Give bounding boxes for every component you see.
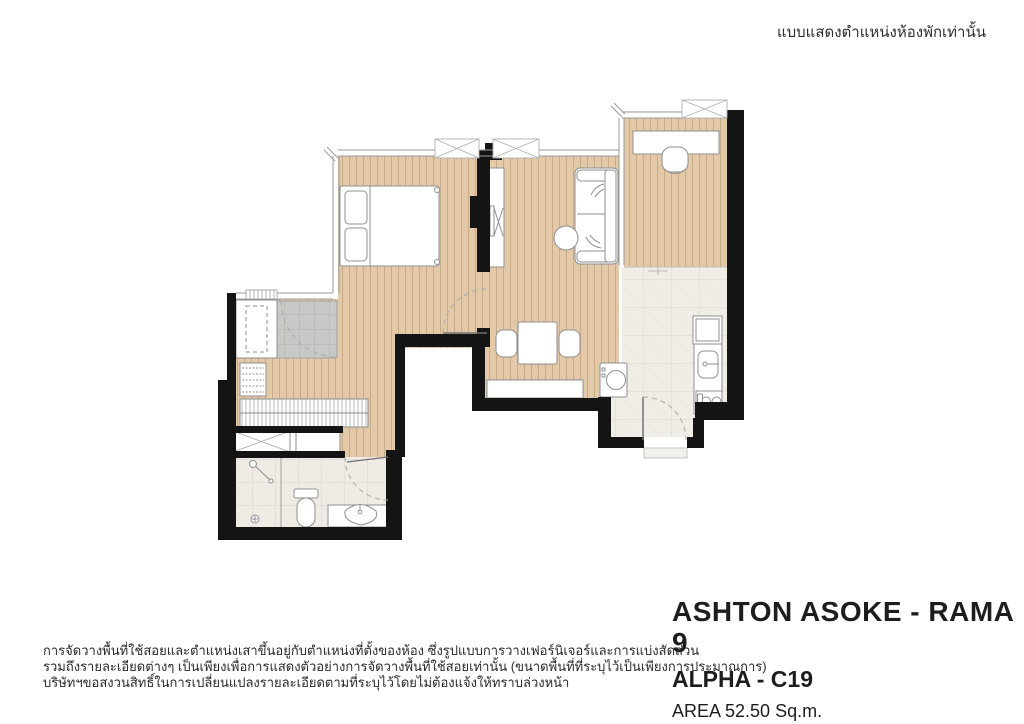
dining-counter-icon: [487, 380, 583, 398]
sink-icon: [698, 351, 719, 378]
disclaimer-line-2: รวมถึงรายละเอียดต่างๆ เป็นเพียงเพื่อการแ…: [43, 659, 767, 675]
bathroom-top-wall: [227, 451, 345, 458]
fridge-icon: [693, 316, 722, 344]
vanity-basin-icon: [328, 505, 389, 528]
ac-unit-icon-3: [682, 100, 727, 118]
bedroom-partition-block: [470, 196, 490, 228]
bedroom-partition-stub: [477, 328, 490, 347]
louver-vent: [246, 290, 277, 299]
ac-unit-icon-1: [435, 139, 479, 158]
corridor-east-wall: [395, 334, 405, 457]
ac-ledge-gray-tile: [277, 301, 337, 358]
entry-threshold: [644, 448, 687, 458]
ac-unit-icon-2: [493, 139, 539, 158]
office-partition: [619, 118, 624, 265]
bathroom-east-wall: [386, 450, 402, 540]
corner-chamfer-bedroom: [324, 147, 338, 161]
unit-area: AREA 52.50 Sq.m.: [672, 701, 1024, 722]
corner-chamfer-office: [611, 103, 625, 117]
bathroom-bottom-wall: [220, 527, 402, 540]
notch-top-wall: [400, 334, 485, 347]
left-wall-lower: [218, 380, 236, 540]
side-table-icon: [554, 226, 578, 250]
disclaimer-line-3: บริษัทฯขอสงวนสิทธิ์ในการเปลี่ยนแปลงรายละ…: [43, 675, 767, 691]
floor-drain-icon: [251, 515, 259, 523]
entry-corner-wall: [695, 402, 744, 420]
shelf-rack-icon: [240, 363, 266, 396]
wardrobe-rail-icon: [240, 399, 368, 427]
disclaimer-line-1: การจัดวางพื้นที่ใช้สอยและตำแหน่งเสาขึ้นอ…: [43, 643, 767, 659]
left-wall-upper: [227, 293, 236, 385]
closet-cabinet-icon: [236, 300, 277, 358]
floorplan-page: แบบแสดงตำแหน่งห้องพักเท่านั้น: [0, 0, 1024, 724]
entry-bottom-wall-east: [687, 437, 700, 448]
right-wall: [727, 110, 744, 420]
washing-machine-icon: [600, 363, 627, 397]
toilet-icon: [294, 489, 318, 527]
ledge-top-wall: [230, 426, 343, 433]
dining-bottom-wall: [483, 398, 605, 411]
desk-chair-icon: [662, 147, 688, 174]
bed-icon: [340, 186, 440, 266]
tv-panel-icon: [489, 168, 504, 267]
disclaimer: การจัดวางพื้นที่ใช้สอยและตำแหน่งเสาขึ้นอ…: [43, 643, 767, 691]
sofa-icon: [575, 168, 618, 264]
ac-condenser-icon: [233, 431, 290, 452]
ledge-box-icon: [296, 431, 340, 452]
dining-west-wall: [472, 345, 485, 411]
